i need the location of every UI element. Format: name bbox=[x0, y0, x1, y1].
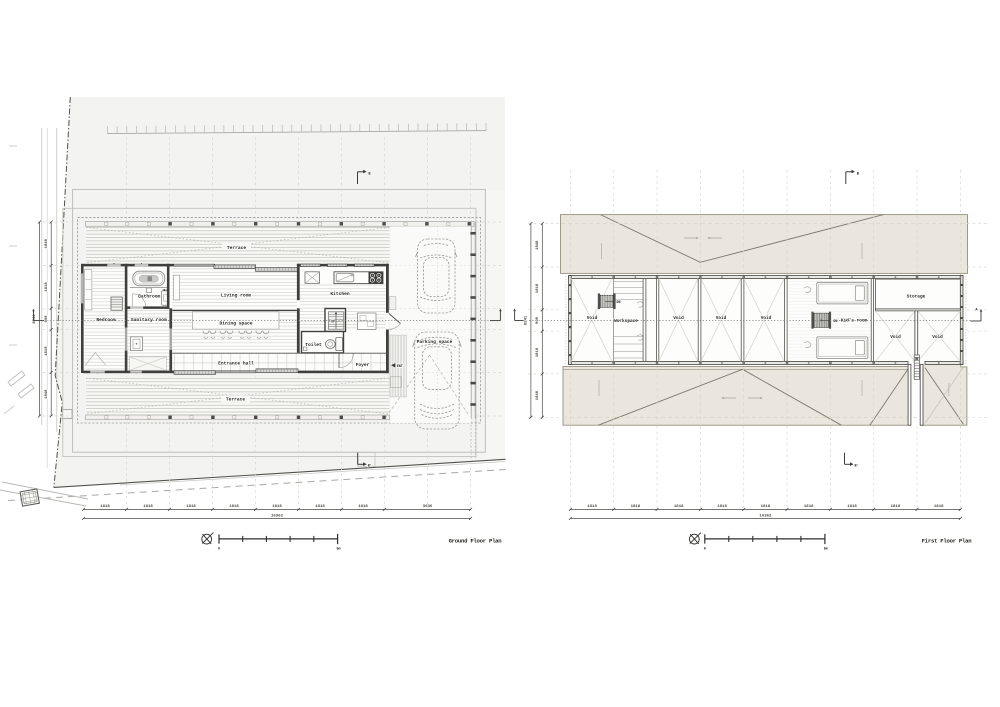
svg-text:1818: 1818 bbox=[358, 505, 368, 509]
svg-text:B': B' bbox=[368, 463, 372, 468]
svg-text:B': B' bbox=[855, 463, 859, 468]
svg-text:1818: 1818 bbox=[847, 505, 857, 509]
svg-text:1818: 1818 bbox=[761, 505, 771, 509]
svg-text:DN: DN bbox=[834, 319, 838, 323]
svg-text:1848: 1848 bbox=[536, 390, 540, 400]
svg-text:1818: 1818 bbox=[45, 282, 49, 292]
svg-text:Dining space: Dining space bbox=[219, 321, 252, 327]
svg-text:1818: 1818 bbox=[186, 505, 196, 509]
svg-text:ENT: ENT bbox=[397, 365, 403, 369]
svg-text:DN: DN bbox=[617, 300, 621, 304]
svg-text:Entrance hall: Entrance hall bbox=[218, 360, 254, 366]
svg-text:Parking space: Parking space bbox=[417, 339, 453, 345]
svg-text:Sanitary room: Sanitary room bbox=[131, 317, 167, 323]
svg-text:1848: 1848 bbox=[536, 240, 540, 250]
svg-text:1818: 1818 bbox=[315, 505, 325, 509]
svg-text:1818: 1818 bbox=[536, 283, 540, 293]
svg-text:UP: UP bbox=[331, 319, 335, 323]
svg-text:1848: 1848 bbox=[45, 389, 49, 399]
svg-text:1848: 1848 bbox=[45, 238, 49, 248]
svg-text:1818: 1818 bbox=[717, 505, 727, 509]
svg-text:1818: 1818 bbox=[100, 505, 110, 509]
svg-text:Kid's room: Kid's room bbox=[841, 319, 868, 324]
svg-text:1818: 1818 bbox=[45, 346, 49, 356]
svg-text:Void: Void bbox=[932, 335, 943, 340]
svg-text:909: 909 bbox=[45, 315, 49, 323]
svg-text:1818: 1818 bbox=[536, 347, 540, 357]
svg-text:Terrace: Terrace bbox=[227, 245, 247, 251]
svg-text:1818: 1818 bbox=[143, 505, 153, 509]
svg-text:Bedroom: Bedroom bbox=[96, 317, 116, 323]
svg-text:1818: 1818 bbox=[934, 505, 944, 509]
svg-text:8241: 8241 bbox=[525, 315, 529, 325]
svg-text:Foyer: Foyer bbox=[356, 362, 370, 368]
svg-text:1818: 1818 bbox=[674, 505, 684, 509]
svg-text:Toilet: Toilet bbox=[305, 342, 322, 348]
svg-text:16362: 16362 bbox=[759, 514, 772, 518]
svg-text:909: 909 bbox=[536, 316, 540, 324]
svg-text:First Floor Plan: First Floor Plan bbox=[922, 538, 973, 545]
svg-text:1818: 1818 bbox=[891, 505, 901, 509]
svg-text:Void: Void bbox=[890, 335, 901, 340]
svg-text:Workspace: Workspace bbox=[614, 319, 638, 324]
svg-text:1818: 1818 bbox=[272, 505, 282, 509]
svg-text:1818: 1818 bbox=[229, 505, 239, 509]
svg-text:Ground Floor Plan: Ground Floor Plan bbox=[449, 538, 503, 545]
svg-text:1818: 1818 bbox=[587, 505, 597, 509]
svg-text:Living room: Living room bbox=[221, 292, 252, 298]
svg-text:0: 0 bbox=[218, 547, 220, 551]
svg-text:Bathroom: Bathroom bbox=[138, 294, 160, 300]
svg-text:16362: 16362 bbox=[271, 514, 284, 518]
svg-text:Kitchen: Kitchen bbox=[330, 291, 350, 297]
svg-text:0: 0 bbox=[704, 547, 706, 551]
svg-text:Storage: Storage bbox=[907, 294, 926, 299]
svg-text:5m: 5m bbox=[336, 547, 340, 551]
svg-text:1818: 1818 bbox=[631, 505, 641, 509]
svg-text:1818: 1818 bbox=[804, 505, 814, 509]
svg-text:5m: 5m bbox=[824, 547, 828, 551]
svg-text:Terrace: Terrace bbox=[226, 396, 246, 402]
svg-text:3636: 3636 bbox=[423, 505, 433, 509]
